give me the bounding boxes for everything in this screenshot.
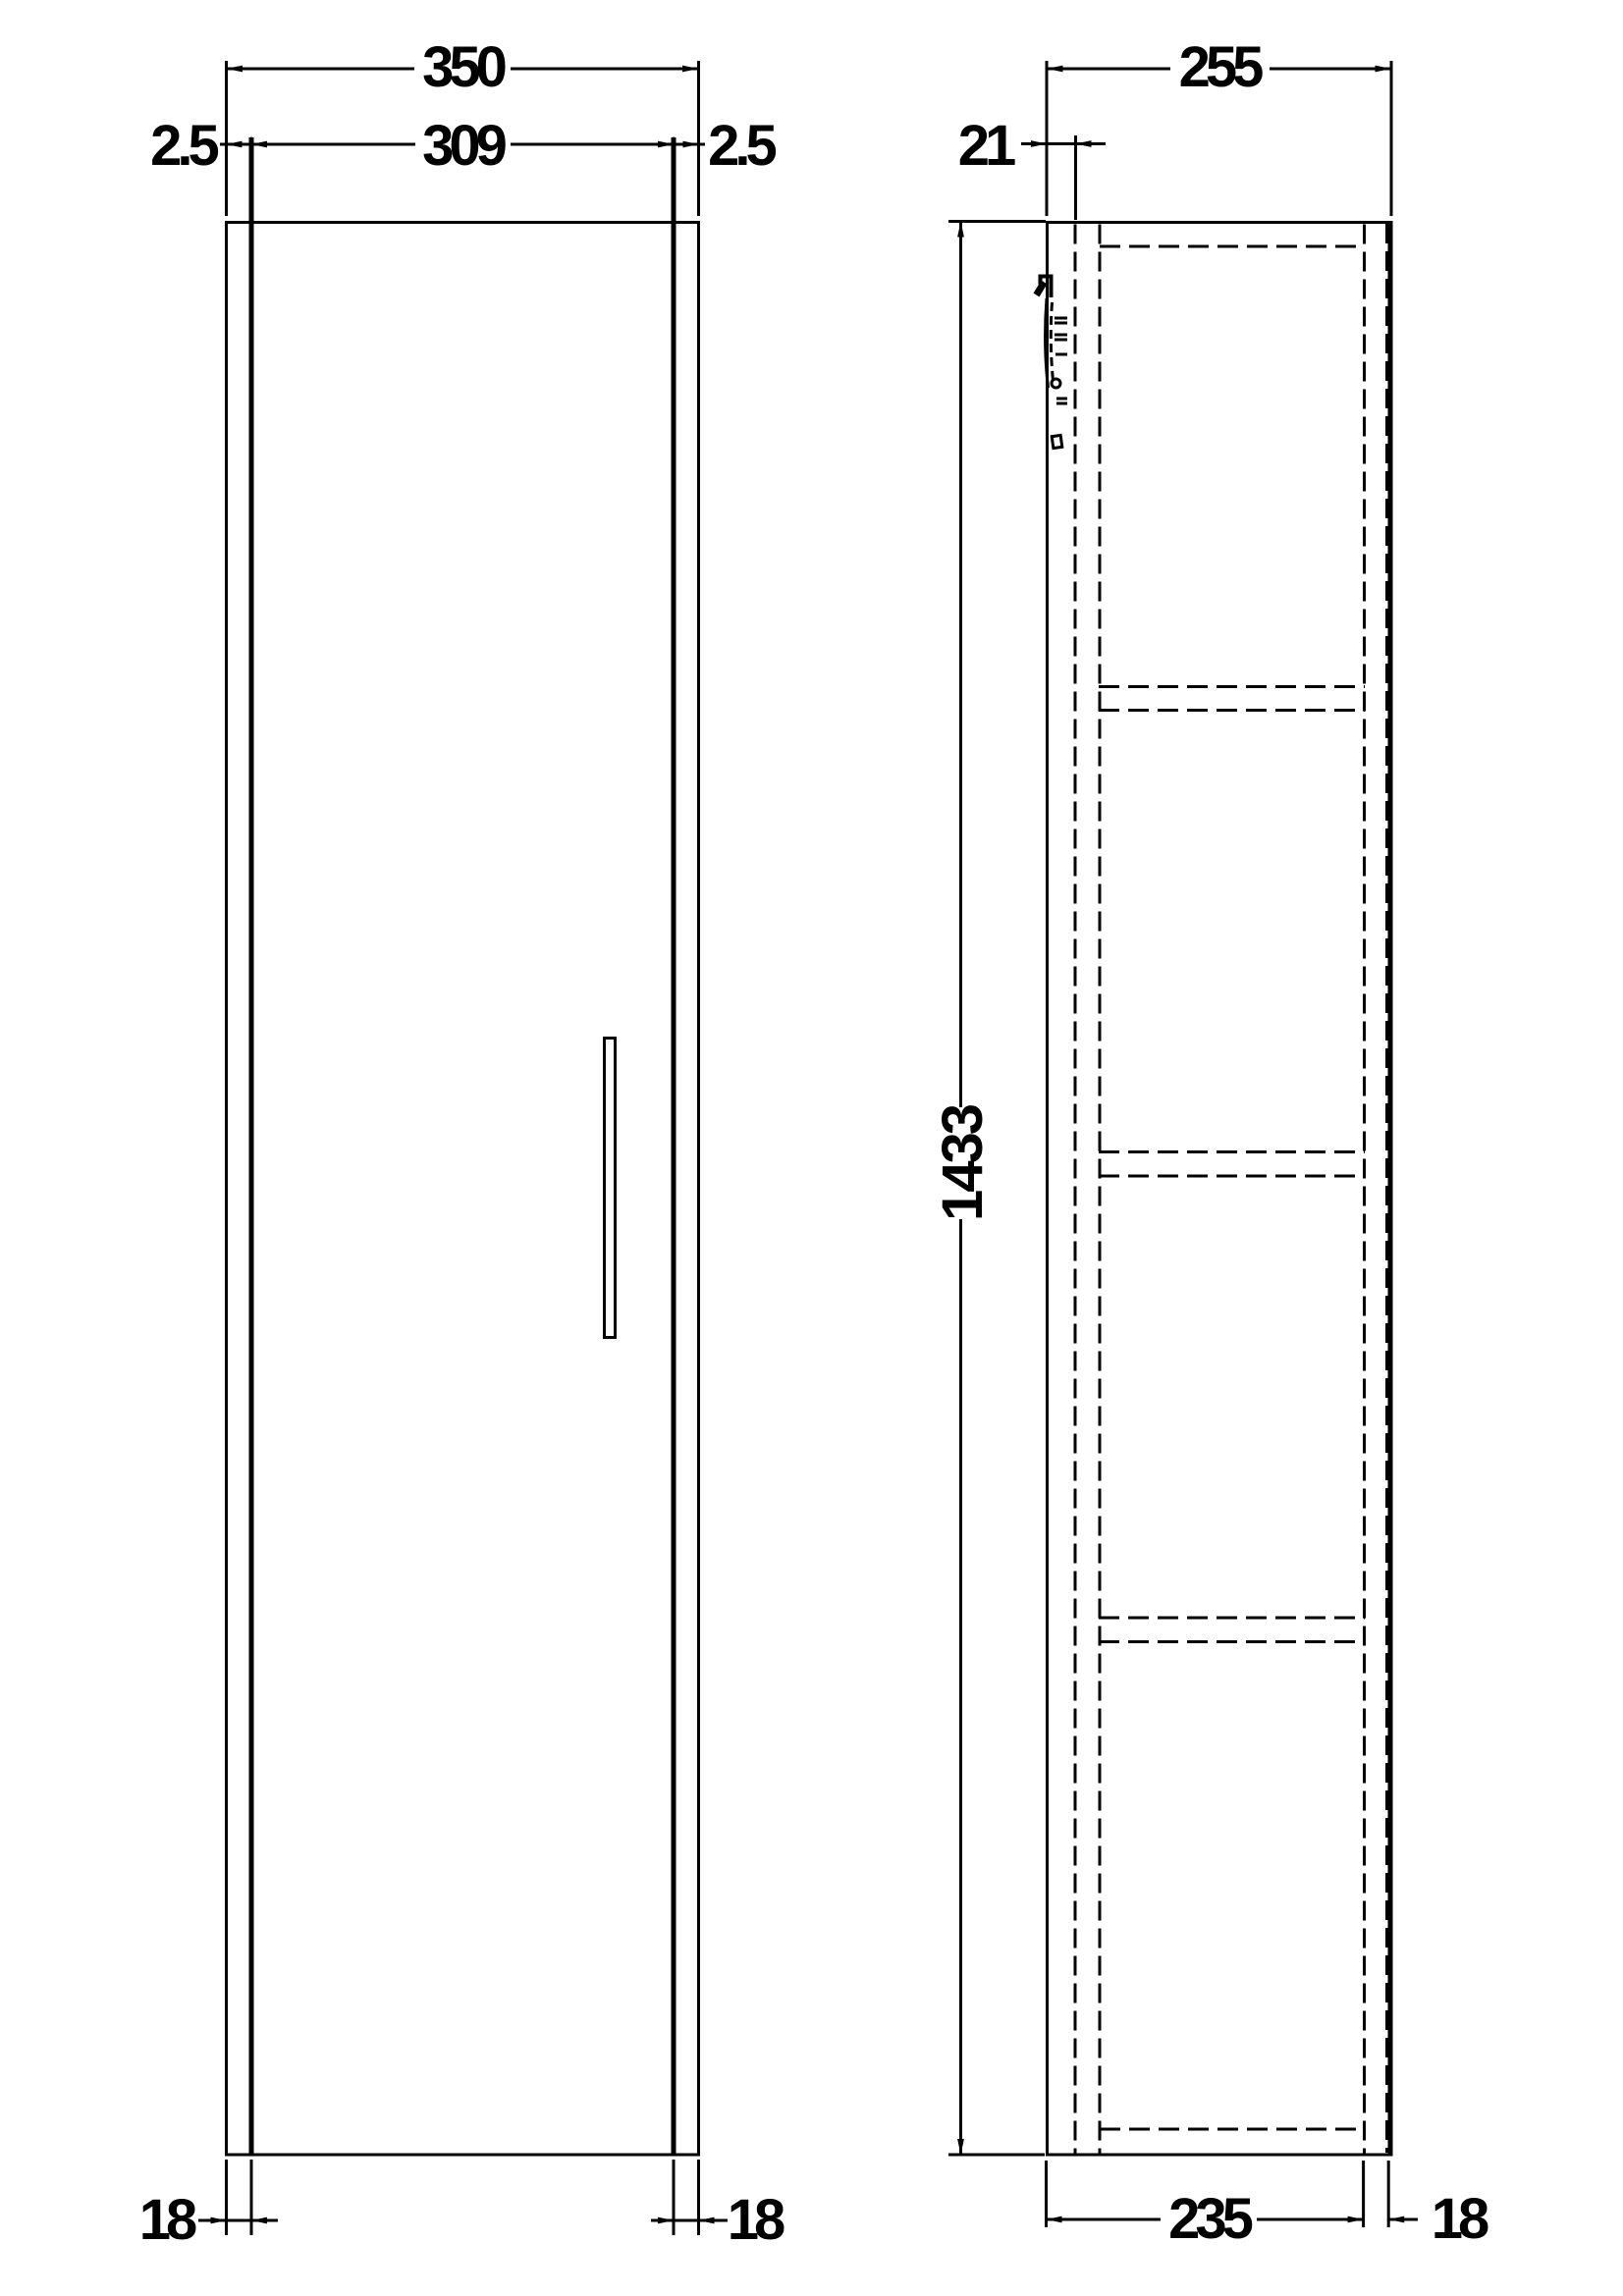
svg-text:235: 235 (1168, 2187, 1253, 2251)
svg-text:255: 255 (1179, 35, 1264, 99)
svg-text:18: 18 (1432, 2187, 1488, 2251)
svg-text:309: 309 (422, 114, 507, 178)
svg-text:1433: 1433 (931, 1104, 995, 1221)
svg-text:18: 18 (728, 2188, 784, 2252)
svg-text:350: 350 (422, 35, 506, 99)
svg-text:2.5: 2.5 (150, 114, 218, 178)
svg-text:18: 18 (139, 2188, 196, 2252)
svg-text:21: 21 (958, 114, 1015, 178)
svg-text:2.5: 2.5 (708, 114, 776, 178)
